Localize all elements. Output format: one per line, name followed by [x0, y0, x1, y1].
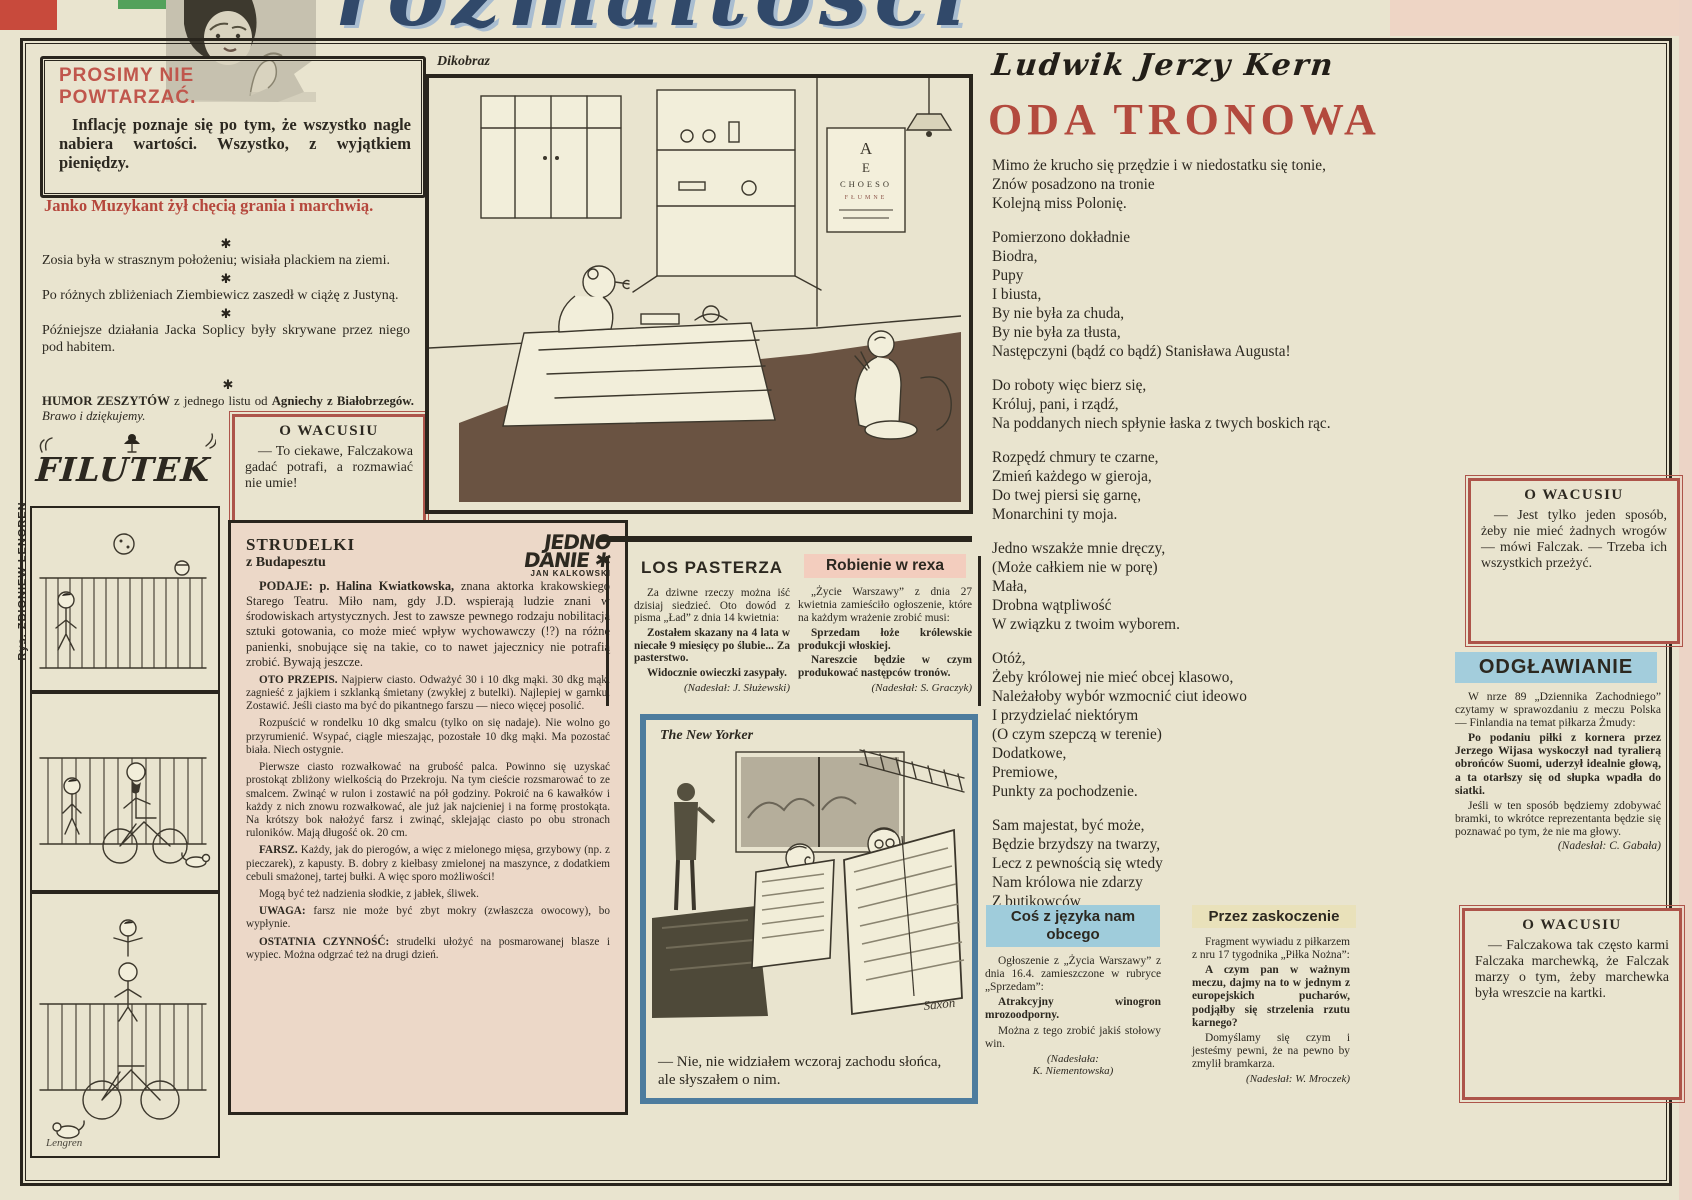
recipe-body: PODAJE: p. Halina Kwiatkowska, znana akt…: [246, 579, 610, 962]
filutek-title: FILUTEK: [35, 450, 212, 489]
cos-z-jezyka-column: Coś z języka namobcego Ogłoszenie z „Życ…: [985, 905, 1161, 1077]
column-title: Przez zaskoczenie: [1192, 905, 1356, 928]
column-body: „Życie Warszawy” z dnia 27 kwietnia zami…: [798, 586, 972, 680]
o-wacusiu-box-1: O WACUSIU — To ciekawe, Falczakowa gadać…: [232, 414, 426, 530]
contributor-credit: (Nadesłała:K. Niementowska): [985, 1053, 1161, 1077]
contributor-credit: (Nadesłał: C. Gabała): [1455, 840, 1661, 852]
o-wacusiu-box-3: O WACUSIU — Falczakowa tak często karmi …: [1462, 908, 1682, 1100]
reader-jokes-list: Zosia była w strasznym położeniu; wisiał…: [42, 234, 410, 359]
dikobraz-label: Dikobraz: [437, 54, 490, 70]
los-pasterza-column: LOS PASTERZA Za dziwne rzeczy można iść …: [634, 558, 790, 694]
svg-text:Saxon: Saxon: [923, 995, 956, 1013]
prosimy-nie-powtarzac-box: PROSIMY NIE POWTARZAĆ. Inflację poznaje …: [40, 56, 426, 198]
column-rule-right: [978, 556, 981, 706]
svg-text:A: A: [860, 139, 873, 158]
odglawianie-body: W nrze 89 „Dziennika Zachodniego” czytam…: [1455, 690, 1661, 852]
section-divider-rule: [598, 536, 972, 542]
new-yorker-cartoon-box: The New Yorker: [640, 714, 978, 1104]
svg-text:E: E: [862, 160, 870, 175]
eye-chart: A E CHOESO FŁUMNE: [827, 128, 905, 232]
strudelki-recipe-box: JEDNO DANIE ✱ JAN KALKOWSKI STRUDELKI z …: [228, 520, 628, 1115]
column-body: Za dziwne rzeczy można iść dzisiaj siedz…: [634, 587, 790, 680]
dikobraz-cartoon: A E CHOESO FŁUMNE: [425, 74, 973, 514]
poem-author: Ludwik Jerzy Kern: [990, 48, 1336, 83]
top-left-red-strip: [0, 0, 57, 30]
artist-margin-credit: Rys. ZBIGNIEW LENGREN: [17, 499, 29, 664]
odglawianie-title: ODGŁAWIANIE: [1455, 652, 1657, 683]
column-rule-left: [606, 556, 609, 706]
column-title: Coś z języka namobcego: [986, 905, 1160, 947]
poem-body: Mimo że krucho się przędzie i w niedosta…: [992, 156, 1444, 945]
box-title: O WACUSIU: [1475, 917, 1669, 934]
filutek-comic-panel-3: Lengren: [30, 892, 220, 1158]
filutek-comic-panel-1: [30, 506, 220, 692]
column-body: Fragment wywiadu z piłkarzem z nru 17 ty…: [1192, 936, 1350, 1071]
new-yorker-label: The New Yorker: [660, 728, 753, 744]
svg-text:Lengren: Lengren: [45, 1137, 83, 1149]
contributor-credit: (Nadesłał: S. Graczyk): [798, 682, 972, 694]
o-wacusiu-box-2: O WACUSIU — Jest tylko jeden sposób, żeb…: [1468, 478, 1680, 644]
janko-muzykant-line: Janko Muzykant żył chęcią grania i march…: [44, 196, 404, 216]
box-title: O WACUSIU: [1481, 487, 1667, 504]
box-text: — Falczakowa tak często karmi Falczaka m…: [1475, 937, 1669, 1001]
filutek-logo: FILUTEK: [36, 430, 226, 489]
filutek-comic-panel-2: [30, 692, 220, 892]
column-body: Ogłoszenie z „Życia Warszawy” z dnia 16.…: [985, 955, 1161, 1051]
top-right-pink-strip: [1390, 0, 1692, 36]
box-text: — To ciekawe, Falczakowa gadać potrafi, …: [245, 443, 413, 491]
svg-text:CHOESO: CHOESO: [840, 179, 892, 189]
train-cartoon: Saxon: [652, 748, 966, 1018]
column-title: LOS PASTERZA: [634, 558, 790, 578]
humor-lead: HUMOR ZESZYTÓW: [42, 394, 170, 408]
robienie-w-rexa-column: Robienie w rexa „Życie Warszawy” z dnia …: [798, 554, 972, 694]
column-title: Robienie w rexa: [804, 554, 966, 578]
contributor-credit: (Nadesłał: W. Mroczek): [1192, 1073, 1350, 1085]
newspaper-page: rozmaitości Rys. ZBIGNIEW LENGREN PROSIM…: [0, 0, 1692, 1200]
box-title: O WACUSIU: [245, 423, 413, 440]
box-title: PROSIMY NIE POWTARZAĆ.: [59, 65, 411, 109]
cartoon-caption: — Nie, nie widziałem wczoraj zachodu sło…: [658, 1053, 950, 1091]
inflation-joke-text: Inflację poznaje się po tym, że wszystko…: [59, 115, 411, 172]
poem-title: ODA TRONOWA: [988, 94, 1381, 145]
box-text: — Jest tylko jeden sposób, żeby nie mieć…: [1481, 507, 1667, 571]
contributor-credit: (Nadesłał: J. Służewski): [634, 682, 790, 694]
przez-zaskoczenie-column: Przez zaskoczenie Fragment wywiadu z pił…: [1192, 905, 1350, 1085]
svg-text:FŁUMNE: FŁUMNE: [845, 195, 888, 201]
